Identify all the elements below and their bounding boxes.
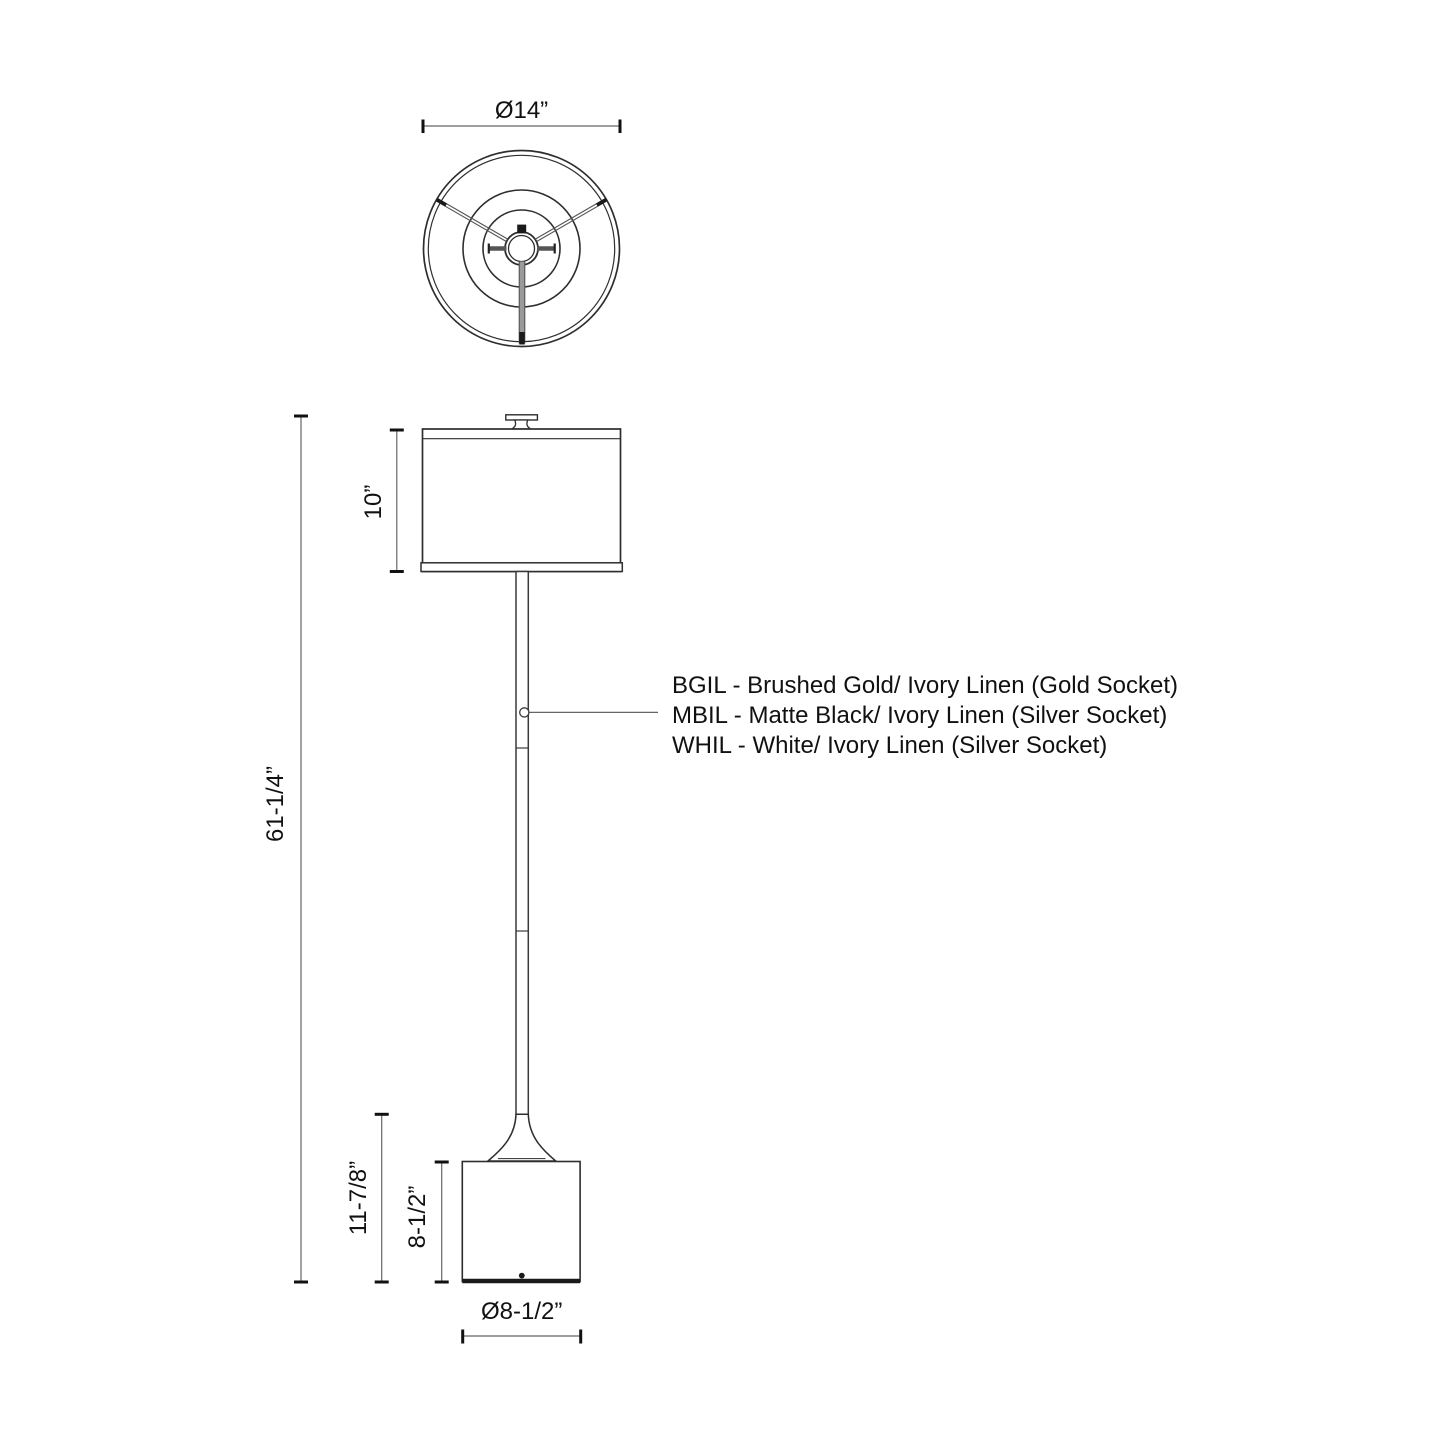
- label-total-height: 61-1/4”: [264, 766, 288, 842]
- shade-body: [423, 429, 621, 572]
- finish-option-mbil: MBIL - Matte Black/ Ivory Linen (Silver …: [672, 701, 1178, 731]
- top-view-drawing: [424, 151, 620, 347]
- dim-base-height: [435, 1162, 449, 1282]
- dim-base-diameter: [463, 1330, 581, 1344]
- finish-option-whil: WHIL - White/ Ivory Linen (Silver Socket…: [672, 731, 1178, 761]
- socket-ring-outer: [505, 232, 538, 265]
- label-shade-height: 10”: [362, 484, 386, 519]
- dim-shade-height: [390, 430, 404, 572]
- finial-disc: [506, 415, 538, 420]
- base-cord-dot: [519, 1273, 525, 1279]
- spider-spoke-upper-left: [436, 198, 508, 241]
- side-view-drawing: [421, 415, 622, 1282]
- socket-switch-square: [517, 225, 526, 234]
- dim-total-height: [294, 416, 308, 1282]
- stem-flare: [488, 1114, 556, 1161]
- label-base-diameter: Ø8-1/2”: [481, 1300, 562, 1324]
- label-base-assembly-height: 11-7/8”: [347, 1160, 371, 1234]
- finish-options-leader: [520, 708, 658, 717]
- dimension-diagram: Ø14” 10” 61-1/4” 11-7/8” 8-1/2” Ø8-1/2” …: [0, 0, 1445, 1445]
- shade-bottom-rim: [421, 563, 622, 572]
- finial-neck: [512, 420, 531, 429]
- socket-ring-inner: [509, 236, 535, 262]
- finish-options-list: BGIL - Brushed Gold/ Ivory Linen (Gold S…: [672, 671, 1178, 761]
- dim-base-assembly-height: [375, 1114, 389, 1282]
- label-base-height: 8-1/2”: [406, 1185, 430, 1248]
- spider-spoke-upper-right: [535, 198, 607, 241]
- lamp-stem: [516, 572, 528, 1115]
- stem-top-view: [519, 262, 525, 345]
- label-shade-diameter: Ø14”: [495, 99, 548, 123]
- lamp-base: [462, 1162, 580, 1282]
- finish-option-bgil: BGIL - Brushed Gold/ Ivory Linen (Gold S…: [672, 671, 1178, 701]
